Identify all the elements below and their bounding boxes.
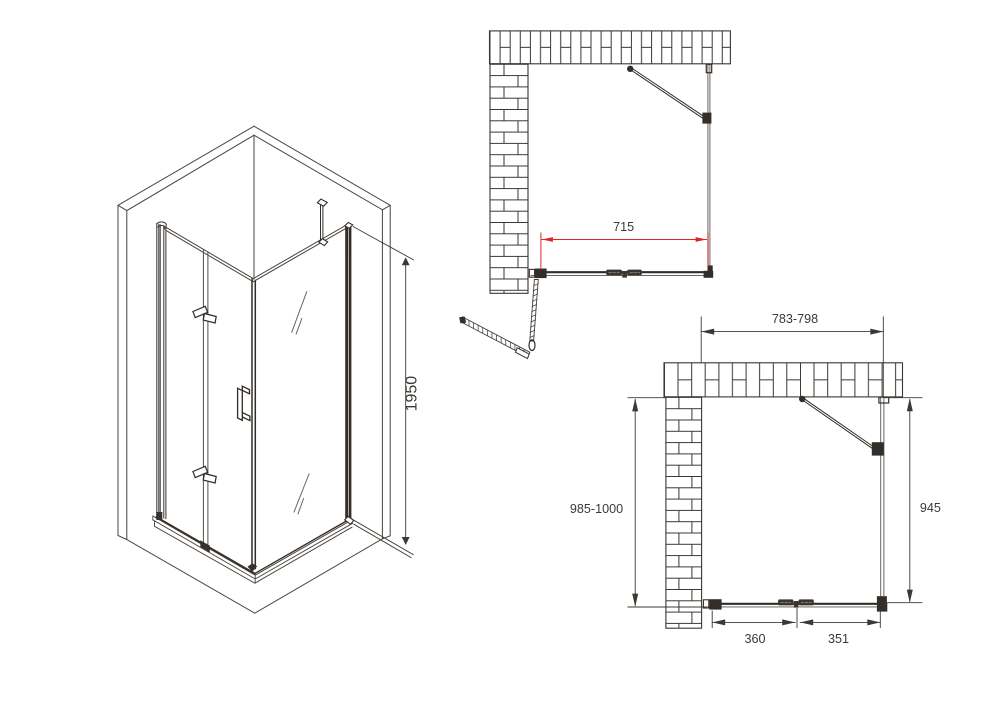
svg-text:783-798: 783-798 — [772, 312, 818, 326]
svg-text:351: 351 — [828, 632, 849, 646]
svg-text:985-1000: 985-1000 — [570, 502, 623, 516]
svg-text:715: 715 — [613, 220, 634, 234]
svg-text:1950: 1950 — [404, 376, 421, 412]
svg-text:945: 945 — [920, 501, 941, 515]
svg-text:360: 360 — [744, 632, 765, 646]
